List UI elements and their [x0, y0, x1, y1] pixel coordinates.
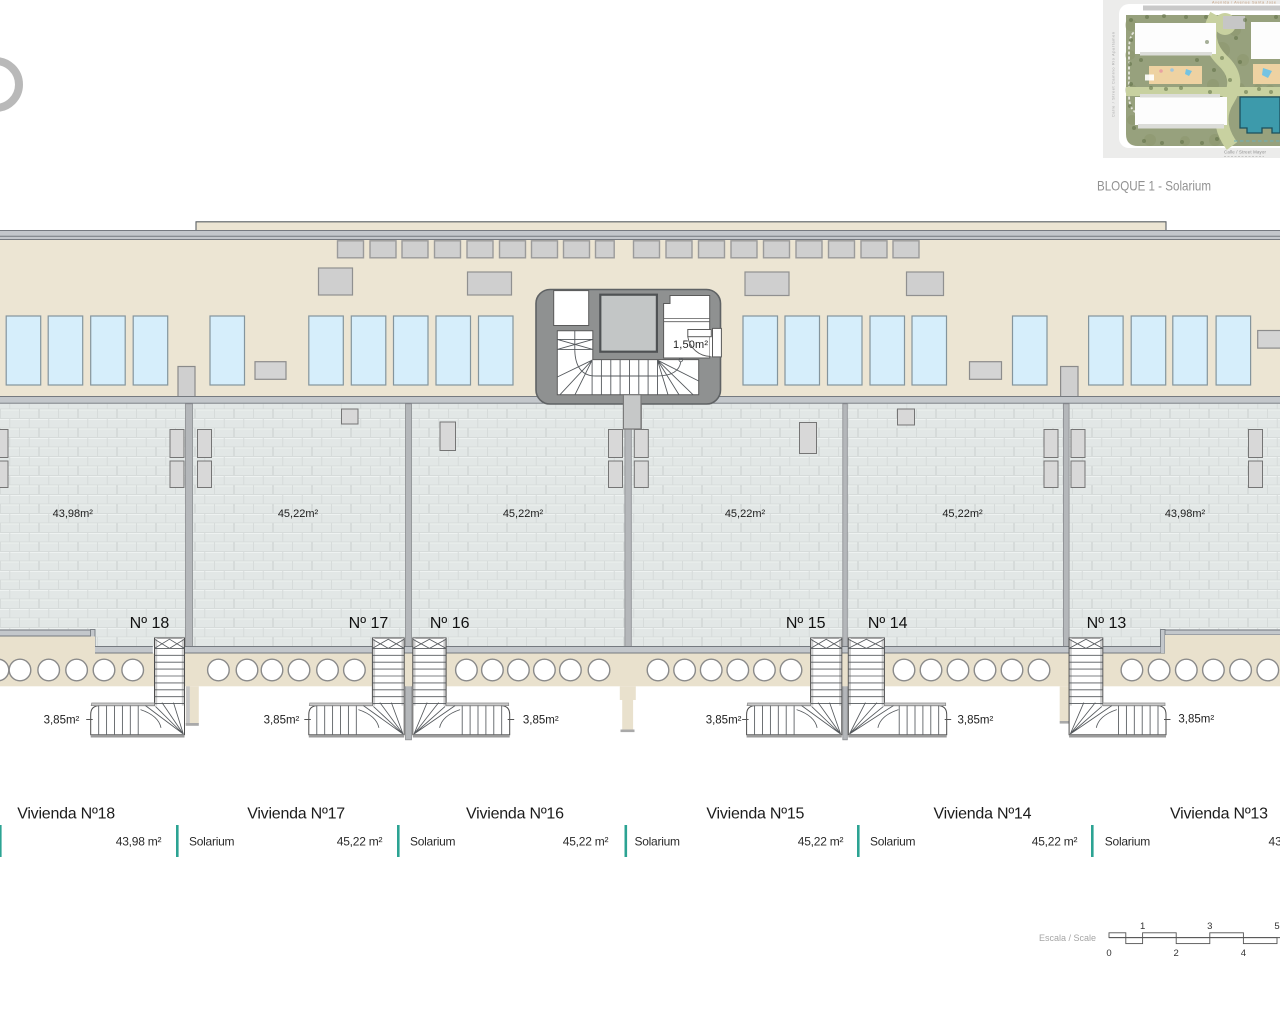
svg-text:45,22m²: 45,22m² — [278, 508, 319, 520]
svg-text:0: 0 — [1106, 948, 1111, 959]
svg-text:Solarium: Solarium — [1105, 835, 1151, 849]
svg-text:Avenida / Avenue Santa Jose: Avenida / Avenue Santa Jose — [1212, 1, 1276, 5]
svg-text:43,98m²: 43,98m² — [1165, 508, 1206, 520]
svg-text:3,85m²: 3,85m² — [44, 715, 80, 727]
svg-text:Solarium: Solarium — [635, 835, 681, 849]
svg-text:3,85m²: 3,85m² — [706, 715, 742, 727]
svg-text:Nº 14: Nº 14 — [868, 615, 908, 632]
svg-text:45,22 m²: 45,22 m² — [798, 835, 844, 849]
svg-text:45,22m²: 45,22m² — [503, 508, 544, 520]
svg-text:Vivienda Nº13: Vivienda Nº13 — [1170, 806, 1268, 823]
svg-text:Solarium: Solarium — [189, 835, 235, 849]
svg-text:Vivienda Nº14: Vivienda Nº14 — [934, 806, 1032, 823]
svg-text:2: 2 — [1174, 948, 1179, 959]
svg-text:Vivienda Nº16: Vivienda Nº16 — [466, 806, 564, 823]
svg-text:Nº 18: Nº 18 — [130, 615, 170, 632]
svg-text:43,98m²: 43,98m² — [53, 508, 94, 520]
svg-text:Nº 13: Nº 13 — [1087, 615, 1127, 632]
svg-text:Vivienda Nº18: Vivienda Nº18 — [17, 806, 115, 823]
svg-text:45,22 m²: 45,22 m² — [563, 835, 609, 849]
svg-text:Solarium: Solarium — [870, 835, 916, 849]
svg-text:3,85m²: 3,85m² — [264, 715, 300, 727]
svg-text:4: 4 — [1241, 948, 1246, 959]
svg-text:3,85m²: 3,85m² — [1178, 714, 1214, 726]
svg-text:43,98 m²: 43,98 m² — [1269, 835, 1280, 849]
svg-text:Vivienda Nº17: Vivienda Nº17 — [247, 806, 345, 823]
svg-text:BLOQUE 1 - Solarium: BLOQUE 1 - Solarium — [1097, 177, 1211, 193]
svg-text:3,85m²: 3,85m² — [523, 715, 559, 727]
svg-text:45,22m²: 45,22m² — [942, 508, 983, 520]
svg-text:45,22m²: 45,22m² — [725, 508, 766, 520]
svg-text:3,85m²: 3,85m² — [958, 715, 994, 727]
svg-text:1: 1 — [1140, 921, 1145, 932]
svg-text:Calle / Street Camino Rio Apar: Calle / Street Camino Rio Apartamen — [1112, 32, 1116, 117]
svg-text:3: 3 — [1207, 921, 1212, 932]
svg-text:Vivienda Nº15: Vivienda Nº15 — [706, 806, 804, 823]
svg-text:Calle / Street Mayor: Calle / Street Mayor — [1224, 150, 1267, 155]
svg-text:5: 5 — [1274, 921, 1279, 932]
svg-text:43,98 m²: 43,98 m² — [116, 835, 162, 849]
svg-text:Nº 15: Nº 15 — [786, 615, 826, 632]
svg-text:Escala / Scale: Escala / Scale — [1039, 933, 1096, 943]
svg-text:45,22 m²: 45,22 m² — [1032, 835, 1078, 849]
svg-text:45,22 m²: 45,22 m² — [337, 835, 383, 849]
svg-text:Solarium: Solarium — [410, 835, 456, 849]
svg-text:Nº 17: Nº 17 — [349, 615, 389, 632]
svg-text:Nº 16: Nº 16 — [430, 615, 470, 632]
